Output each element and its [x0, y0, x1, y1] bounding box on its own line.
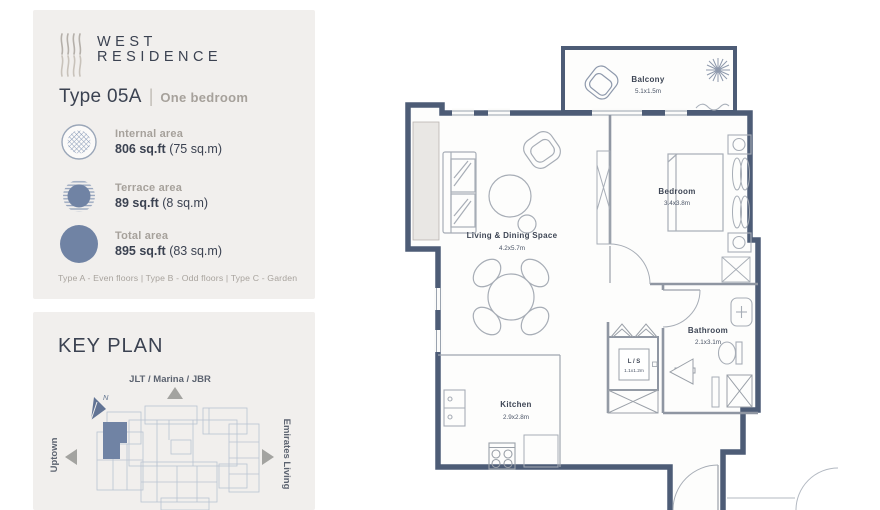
unit-floor: [408, 105, 758, 510]
floor-plan: L / S 1.1x1.2m Balcony 5: [0, 0, 880, 510]
room-label-balcony: Balcony: [631, 75, 664, 84]
corridor-door-outside: [727, 468, 838, 510]
room-label-bedroom: Bedroom: [658, 187, 695, 196]
room-label-ls: L / S: [628, 359, 641, 365]
room-label-living: Living & Dining Space: [467, 231, 558, 240]
room-dims-bedroom: 3.4x3.8m: [664, 200, 690, 207]
room-label-kitchen: Kitchen: [500, 400, 531, 409]
room-dims-ls: 1.1x1.2m: [624, 368, 644, 374]
room-label-bathroom: Bathroom: [688, 326, 728, 335]
plant-icon: [706, 58, 730, 82]
room-dims-kitchen: 2.9x2.8m: [503, 414, 529, 421]
room-dims-living: 4.2x5.7m: [499, 245, 525, 252]
window-sill: [413, 122, 439, 240]
room-dims-bathroom: 2.1x3.1m: [695, 339, 721, 346]
page: WEST RESIDENCE Type 05A|One bedroom: [0, 0, 880, 510]
room-dims-balcony: 5.1x1.5m: [635, 88, 661, 95]
